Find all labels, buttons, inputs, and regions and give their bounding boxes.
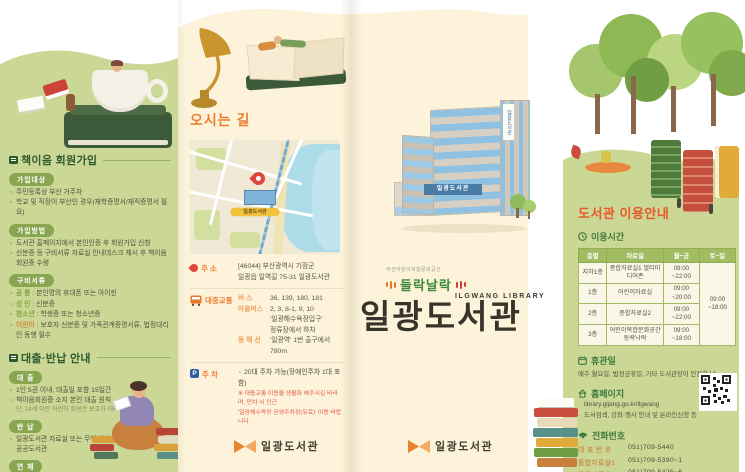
spacer: [238, 326, 270, 337]
hours-subtitle-text: 이용시간: [591, 230, 624, 243]
cup-handle: [146, 79, 168, 103]
join-method-item: 도서관 홈페이지에서 본인인증 후 회원가입 신청: [9, 239, 171, 249]
village-stop: '일광해수욕장입구': [270, 315, 323, 326]
docs-label: 어린이: [16, 322, 40, 329]
docs-row: 공 통본인명의 휴대폰 또는 아이핀: [9, 289, 171, 300]
rail-sublabel: 동 해 선: [238, 336, 270, 357]
brand-mark: [464, 282, 466, 287]
cell-weekday: 09:00~20:00: [663, 283, 699, 304]
book-stack: [90, 444, 114, 451]
hours-table: 층별 자료실 월~금 토~일 지하1층 종합자료실1 멀티미디어존 09:00~…: [578, 248, 736, 346]
parking-text: 20대 주차 가능(장애인주차 1대 포함): [238, 369, 340, 387]
address-label-wrap: 주 소: [190, 262, 238, 283]
tree-trunk: [711, 74, 716, 126]
deullak-nallak-brand: 부산어린이복합문화공간 들락날락: [386, 266, 516, 294]
closed-days-subtitle: 휴관일: [578, 354, 738, 367]
panel-membership: 책이음 회원가입 가입대상 주민등록상 부산 거주자 학교 및 직장이 부산인 …: [0, 0, 178, 472]
map-green-area: [194, 210, 220, 240]
badge-join-target: 가입대상: [9, 173, 54, 186]
cell-weekend: 09:00~18:00: [699, 263, 735, 346]
library-name-calligraphy: 일광도서관: [360, 300, 555, 335]
hours-row: 지하1층 종합자료실1 멀티미디어존 09:00~22:00 09:00~18:…: [579, 263, 736, 284]
transit-row: 대중교통 버 스36, 139, 180, 181 마을버스2, 3, 8-1,…: [190, 294, 344, 357]
loan-section-title: 대출·반납 안내: [9, 350, 171, 366]
cell-weekday: 09:00~18:00: [663, 325, 699, 346]
time-to: ~22:00: [665, 273, 698, 281]
book-stack: [156, 428, 180, 435]
village-lines: 2, 3, 8-1, 9, 10: [270, 305, 314, 316]
header-room: 자료실: [607, 249, 663, 263]
docs-row: 청소년학생증 또는 청소년증: [9, 310, 171, 321]
join-method-item: 신분증 등 구비서류 자료실 안내데스크 제시 후 책이음 회원증 수령: [9, 249, 171, 269]
brand-row: 들락날락: [386, 275, 516, 294]
reader-hair: [130, 381, 147, 391]
phone-number: 051)709-5390~1: [628, 457, 682, 467]
footer-logo: 일광도서관: [234, 438, 319, 454]
book-stack: [154, 444, 178, 451]
badge-join-method: 가입방법: [9, 224, 54, 237]
bus-icon: [190, 295, 202, 306]
cell-room: 어린이자료실: [607, 283, 663, 304]
transit-label-wrap: 대중교통: [190, 294, 238, 357]
address-label: 주 소: [201, 263, 217, 274]
cover-title-block: ILGWANG LIBRARY 일광도서관: [360, 293, 555, 335]
panel-directions-cover: 오시는 길 일광도서관 주 소 [460: [178, 0, 528, 472]
divider: [190, 362, 344, 363]
time-from: 09:00: [665, 265, 698, 273]
map-sea-shallow: [312, 150, 340, 250]
time-from: 09:00: [665, 306, 698, 314]
map-green-area: [230, 232, 260, 248]
brand-mark: [456, 282, 458, 288]
time-from: 09:00: [701, 296, 734, 304]
time-to: ~20:00: [665, 294, 698, 302]
cell-room: 어린이복합문화공간 동락낙락: [607, 325, 663, 346]
address-line1: [46044] 부산광역시 기장군: [238, 262, 330, 273]
carpet-rider: [601, 151, 611, 163]
address-line2: 일광읍 일역길 75-31 일광도서관: [238, 273, 330, 284]
phone-label: 종합자료실1: [578, 457, 628, 467]
building-vertical-sign: 일광도서관: [503, 104, 514, 140]
homepage-title: 홈페이지: [591, 387, 624, 400]
parking-row: P 주 차 20대 주차 가능(장애인주차 1대 포함) ※ 대중교통 이용을 …: [190, 368, 344, 427]
cell-weekday: 09:00~22:00: [663, 304, 699, 325]
qr-code: [699, 373, 737, 411]
stacked-book: [534, 408, 578, 417]
docs-text: 본인명의 휴대폰 또는 아이핀: [36, 290, 117, 297]
tree-trunk: [671, 86, 676, 132]
transit-value: 버 스36, 139, 180, 181 마을버스2, 3, 8-1, 9, 1…: [238, 294, 344, 357]
title-rule: [97, 357, 171, 358]
transit-village: 마을버스2, 3, 8-1, 9, 10: [238, 305, 344, 316]
desk-lamp-illustration: [186, 26, 236, 114]
parking-value: 20대 주차 가능(장애인주차 1대 포함) ※ 대중교통 이용을 생활화 해주…: [238, 368, 344, 427]
footer-logo: 일광도서관: [408, 438, 493, 454]
parking-note1: ※ 대중교통 이용을 생활화 해주시길 바라며, 만차 시 인근: [238, 390, 344, 408]
map-library-building: [244, 190, 276, 205]
header-floor: 층별: [579, 249, 607, 263]
qr-code-pattern: [701, 375, 731, 405]
cell-floor: 지하1층: [579, 263, 607, 284]
footer-logo-text: 일광도서관: [261, 438, 319, 454]
badge-borrow: 대 출: [9, 371, 42, 384]
transit-rail: 동 해 선'일광역' 1번 출구에서 780m: [238, 336, 344, 357]
spacer: [238, 315, 270, 326]
docs-text: 신분증: [36, 301, 55, 308]
homepage-desc: 도서검색, 강좌·행사 안내 및 온라인신청 등: [578, 411, 700, 421]
stacked-book: [537, 418, 577, 427]
tree-trunk: [631, 76, 636, 134]
docs-label: 청소년: [16, 311, 40, 318]
cell-floor: 1층: [579, 283, 607, 304]
open-book-illustration: [242, 20, 352, 96]
brochure-page: 책이음 회원가입 가입대상 주민등록상 부산 거주자 학교 및 직장이 부산인 …: [0, 0, 745, 472]
docs-row: 성 인신분증: [9, 300, 171, 311]
phone-label: 대 표 번 호: [578, 444, 628, 454]
membership-section-title: 책이음 회원가입: [9, 152, 171, 168]
time-to: ~22:00: [665, 314, 698, 322]
calendar-icon: [578, 356, 587, 365]
header-weekday: 월~금: [663, 249, 699, 263]
phone-row: 종합자료실1051)709-5390~1: [578, 457, 738, 467]
building-main-tower: [430, 106, 504, 216]
loan-return-icon: [9, 354, 18, 362]
open-book-left-page: [246, 45, 299, 81]
clock-icon: [578, 232, 587, 241]
map-library-label: 일광도서관: [230, 208, 279, 217]
badge-return: 반 납: [9, 420, 42, 433]
title-rule: [103, 160, 171, 161]
person-in-cup-hair: [111, 60, 123, 66]
stacked-book: [536, 438, 578, 447]
book-pages-edge: [68, 140, 168, 145]
rail-info: '일광역' 1번 출구에서 780m: [270, 336, 344, 357]
location-pin-icon: [188, 262, 199, 273]
time-to: ~18:00: [665, 335, 698, 343]
divider: [190, 288, 344, 289]
hours-subtitle: 이용시간: [578, 230, 738, 243]
phone-title: 전화번호: [592, 429, 625, 442]
docs-text: 학생증 또는 청소년증: [40, 311, 100, 318]
building-ground-shadow: [402, 224, 526, 233]
time-from: 09:00: [665, 285, 698, 293]
brand-small-text: 부산어린이복합문화공간: [386, 266, 516, 273]
panel-usage-guide: 도서관 이용안내 이용시간 층별 자료실 월~금 토~일 지하1층 종합자료실1…: [563, 0, 739, 472]
location-map: 일광도서관: [190, 140, 340, 254]
badge-overdue: 연 체: [9, 460, 42, 472]
parking-label-wrap: P 주 차: [190, 368, 238, 427]
tiny-person-figure: [66, 94, 75, 111]
phone-number: 051)709-5440: [628, 444, 674, 454]
membership-card-icon: [9, 156, 18, 164]
usage-guide-title: 도서관 이용안내: [578, 203, 738, 222]
address-row: 주 소 [46044] 부산광역시 기장군 일광읍 일역길 75-31 일광도서…: [190, 262, 344, 283]
building-left-wing: [402, 135, 434, 215]
closed-days-title: 휴관일: [591, 354, 616, 367]
cell-weekday: 09:00~22:00: [663, 263, 699, 284]
membership-title-text: 책이음 회원가입: [21, 152, 97, 168]
phone-row: 대 표 번 호051)709-5440: [578, 444, 738, 454]
brand-mark: [390, 281, 392, 289]
transit-label: 대중교통: [205, 295, 233, 306]
docs-label: 공 통: [16, 290, 36, 297]
building-sign-band: 일광도서관: [424, 184, 482, 195]
bus-sublabel: 버 스: [238, 294, 270, 305]
footer-logo-text: 일광도서관: [435, 438, 493, 454]
stacked-book: [534, 448, 578, 457]
transit-village-stop2: 정류장에서 하차: [238, 326, 344, 337]
cell-floor: 2층: [579, 304, 607, 325]
loan-title-text: 대출·반납 안내: [21, 350, 91, 366]
book-shelf-green: [651, 140, 681, 198]
bus-lines: 36, 139, 180, 181: [270, 294, 323, 305]
brand-mark: [460, 281, 462, 289]
book-stack: [94, 452, 118, 459]
brand-mark: [386, 282, 388, 287]
village-stop2: 정류장에서 하차: [270, 326, 316, 337]
transit-bus: 버 스36, 139, 180, 181: [238, 294, 344, 305]
library-building-illustration: 일광도서관 일광도서관: [394, 96, 534, 234]
parking-note2: '일광해수욕장 공영주차장(유료)' 이용 바랍니다: [238, 409, 344, 427]
cell-room: 종합자료실2: [607, 304, 663, 325]
phone-subtitle: 전화번호: [578, 429, 738, 442]
usage-guide-content: 도서관 이용안내 이용시간 층별 자료실 월~금 토~일 지하1층 종합자료실1…: [578, 203, 738, 472]
stacked-book: [537, 458, 577, 467]
cell-floor: 3층: [579, 325, 607, 346]
gijang-ribbon-logo: [234, 440, 256, 453]
badge-required-docs: 구비서류: [9, 274, 54, 287]
directions-title: 오시는 길: [190, 110, 250, 130]
book-stack-illustration: [532, 398, 582, 472]
tree-trunk: [595, 94, 600, 134]
parking-icon: P: [190, 369, 199, 378]
brand-name: 들락날락: [400, 275, 452, 294]
directions-info: 주 소 [46044] 부산광역시 기장군 일광읍 일역길 75-31 일광도서…: [190, 262, 344, 427]
cell-room: 종합자료실1 멀티미디어존: [607, 263, 663, 284]
header-weekend: 토~일: [699, 249, 735, 263]
hours-header-row: 층별 자료실 월~금 토~일: [579, 249, 736, 263]
gijang-ribbon-logo: [408, 440, 430, 453]
brand-mark: [394, 282, 396, 288]
docs-row: 어린이보호자 신분증 및 가족관계증명서류, 법정대리인 동행 필수: [9, 321, 171, 342]
book-shelf-yellow: [715, 146, 739, 198]
time-to: ~18:00: [701, 304, 734, 312]
transit-village-stop: '일광해수욕장입구': [238, 315, 344, 326]
tree-trunk: [528, 211, 530, 219]
join-target-item: 주민등록상 부산 거주자: [9, 188, 171, 198]
stacked-book: [533, 428, 578, 437]
tree-trunk: [516, 208, 519, 218]
flying-book-carpet: [585, 162, 631, 173]
docs-label: 성 인: [16, 301, 36, 308]
time-from: 09:00: [665, 327, 698, 335]
address-value: [46044] 부산광역시 기장군 일광읍 일역길 75-31 일광도서관: [238, 262, 330, 283]
village-sublabel: 마을버스: [238, 305, 270, 316]
join-target-item: 학교 및 직장이 부산인 경우(재학증명서/재직증명서 필요): [9, 198, 171, 218]
parking-label: 주 차: [202, 369, 218, 380]
